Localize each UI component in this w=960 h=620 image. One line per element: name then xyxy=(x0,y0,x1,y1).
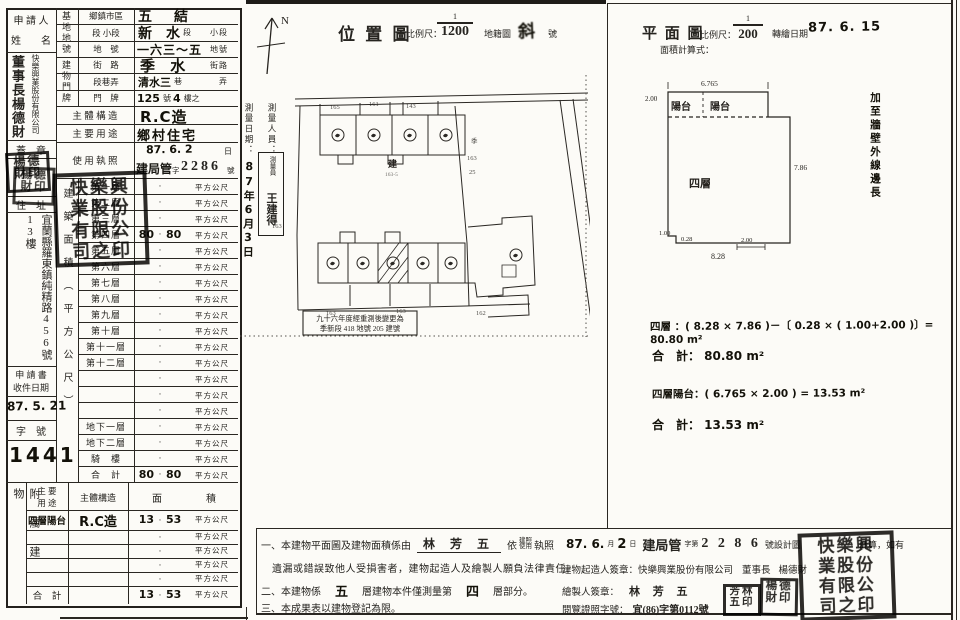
unit-suffix: 巷 xyxy=(174,76,182,87)
grid-line xyxy=(6,212,56,213)
annex-structure-value xyxy=(68,572,128,586)
unit-label: 平方公尺 xyxy=(190,262,233,274)
drafter-name: 林 芳 五 xyxy=(417,535,501,553)
unit-label: 平方公尺 xyxy=(190,182,233,194)
unit-label: 平方公尺 xyxy=(190,559,233,571)
seal-text: 財印 xyxy=(16,181,52,194)
floor-area-right xyxy=(166,276,192,290)
total-floors-value: 五 xyxy=(335,581,348,600)
decimal-dot: · xyxy=(156,586,164,604)
floor-row-label: 第八層 xyxy=(78,290,134,306)
seal-text: 業股份 xyxy=(802,556,891,576)
unit-label: 平方公尺 xyxy=(190,198,233,210)
floor-area-right xyxy=(166,196,192,210)
dim-top: 6.765 xyxy=(701,79,718,88)
floor-area-right xyxy=(166,420,192,434)
floor-area-left xyxy=(130,292,154,306)
drafter-name: 林 芳 五 xyxy=(629,586,693,598)
dim-bottom: 8.28 xyxy=(711,252,725,261)
floor-row-label: 第十層 xyxy=(78,322,134,338)
decimal-dot: · xyxy=(156,544,164,558)
annex-use-header: 用 途 xyxy=(28,497,66,509)
floor-row-label: 騎 樓 xyxy=(78,450,134,466)
redra-date-value: 87. 6. 15 xyxy=(808,19,881,35)
annex-structure-value xyxy=(68,586,128,604)
decimal-dot: · xyxy=(156,354,164,370)
seal-text: 有限公 xyxy=(803,576,892,596)
annex-area-right xyxy=(166,572,192,586)
decimal-dot: · xyxy=(156,402,164,418)
use-license-number: 號 xyxy=(227,165,235,176)
svg-text:九十六年度經重測後變更為: 九十六年度經重測後變更為 xyxy=(316,314,404,323)
annex-use-value xyxy=(26,530,68,544)
decimal-dot: · xyxy=(156,338,164,354)
floor-area-left xyxy=(130,436,154,450)
unit-suffix: 弄 xyxy=(219,76,236,87)
door-number-value: 125 號 4 樓之 xyxy=(137,90,236,106)
floor-row-label: 地下一層 xyxy=(78,418,134,434)
svg-text:163: 163 xyxy=(467,155,477,162)
unit-suffix: 樓之 xyxy=(184,93,200,104)
area-calc-total: 合 計： 80.80 m² xyxy=(652,347,764,364)
decimal-dot: · xyxy=(156,510,164,530)
resurvey-note-stamp: 九十六年度經重測後變更為 季新段 418 地號 205 建號 xyxy=(303,311,417,335)
unit-label: 平方公尺 xyxy=(190,374,233,386)
decimal-dot: · xyxy=(156,434,164,450)
builder-title: 董事長 xyxy=(742,566,771,576)
annex-area-left xyxy=(130,530,154,544)
seal-text: 快樂興 xyxy=(802,536,891,556)
annex-area-left: 13 xyxy=(130,513,154,527)
use-license-number: 2286 xyxy=(181,159,221,175)
svg-text:季: 季 xyxy=(471,136,478,145)
value: 125 xyxy=(137,92,160,105)
row-label: 鄉鎮市區 xyxy=(80,8,132,24)
north-label: N xyxy=(281,15,289,27)
dim-right: 7.86 xyxy=(794,163,807,172)
floor-area-right xyxy=(166,404,192,418)
seal-text: 有限公 xyxy=(58,219,145,240)
structure-label: 主 體 構 造 xyxy=(58,106,132,124)
unit-label: 平方公尺 xyxy=(190,326,233,338)
dim-notch-width: 1.00 xyxy=(659,230,670,237)
floor-area-right xyxy=(166,340,192,354)
site-section-value: 新 水 段 小段 xyxy=(138,24,236,41)
annex-area-left xyxy=(130,572,154,586)
annex-use-value: 四層陽台 xyxy=(26,510,68,530)
section-site-parcel: 基地地號 xyxy=(60,10,73,55)
applicant-company: 快樂興業股份有限公司 xyxy=(30,54,41,140)
note-line-3: 二、本建物係 五 層建物本件僅測量第 四 層部分。 xyxy=(261,581,533,600)
scale-fraction: 1 1200 xyxy=(436,13,474,39)
license-stack: 建照 使用 xyxy=(519,538,532,551)
annex-use-value xyxy=(26,558,68,572)
parcel-annotations: 165 161 143 163 163 163 162 季 163 25 xyxy=(272,101,486,317)
owner-seal: 楊德 財印 xyxy=(12,166,55,205)
decimal-dot: · xyxy=(156,194,164,210)
decimal-dot: · xyxy=(156,530,164,544)
unit-suffix: 街路 xyxy=(210,60,236,71)
floor-area-left xyxy=(130,276,154,290)
floor-row-label: 第九層 xyxy=(78,306,134,322)
balcony-label: 陽台 xyxy=(710,100,730,113)
annex-area-header: 面 積 xyxy=(134,487,234,507)
floor-area-right xyxy=(166,452,192,466)
annex-use-header: 主 要 xyxy=(28,485,66,497)
seal-text: 快樂興 xyxy=(57,176,144,197)
svg-text:143: 143 xyxy=(406,103,416,110)
floor-area-right xyxy=(166,260,192,274)
decimal-dot: · xyxy=(156,572,164,586)
floor-row-label: 第十二層 xyxy=(78,354,134,370)
svg-text:161: 161 xyxy=(369,101,379,108)
license-day: 2 xyxy=(617,537,626,552)
unit-label: 平方公尺 xyxy=(190,390,233,402)
unit-suffix: 小段 xyxy=(210,27,236,38)
row-label: 門 牌 xyxy=(80,90,132,106)
note-text: 號設計圖 xyxy=(765,538,801,551)
unit-label: 平方公尺 xyxy=(190,230,233,242)
unit-suffix: 段 xyxy=(183,27,191,38)
note-text: 月 xyxy=(607,539,614,549)
floor-area-left xyxy=(130,324,154,338)
decimal-dot: · xyxy=(156,242,164,258)
grid-line xyxy=(6,482,238,483)
location-map-title: 位 置 圖 xyxy=(338,20,413,45)
floor-area-right xyxy=(166,324,192,338)
subject-parcel-number: 163-5 xyxy=(385,172,398,178)
row-label: 地 號 xyxy=(80,41,132,57)
annex-area-right xyxy=(166,530,192,544)
grid-line xyxy=(6,440,56,441)
decimal-dot: · xyxy=(156,450,164,466)
lane-value: 清水三 巷 弄 xyxy=(138,73,236,90)
floor-row-label: 合 計 xyxy=(78,466,134,482)
floor-area-right xyxy=(166,436,192,450)
scale-denominator: 200 xyxy=(738,27,758,40)
annex-use-value: 合 計 xyxy=(26,586,68,604)
scale-label: 比例尺： xyxy=(700,28,736,41)
scan-right-edge2 xyxy=(956,0,957,620)
street-value: 季 水 街路 xyxy=(140,57,236,73)
unit-suffix: 號 xyxy=(163,93,171,104)
usage-label: 主 要 用 途 xyxy=(58,124,132,142)
grid-line xyxy=(6,420,56,421)
scanned-survey-document: 申 請 人 姓 名 董事長楊德財 快樂興業股份有限公司 蓋 章 住 址 宜蘭縣羅… xyxy=(0,0,960,620)
row-label: 段 小段 xyxy=(80,24,132,41)
decimal-dot: · xyxy=(156,466,164,482)
use-license-date: 87. 6. 2 xyxy=(146,143,193,157)
north-arrow-icon: N xyxy=(252,6,298,78)
docket-label: 字 號 xyxy=(8,422,54,438)
seal-text: 業股份 xyxy=(57,198,144,219)
svg-text:162: 162 xyxy=(476,310,486,317)
receipt-date-value: 87. 5. 21 xyxy=(7,398,66,413)
builder-signature-line: 建物起造人簽章：快樂興業股份有限公司 董事長 楊德財 xyxy=(562,560,807,578)
unit-label: 平方公尺 xyxy=(190,438,233,450)
decimal-dot: · xyxy=(156,418,164,434)
floor-row-label: 第七層 xyxy=(78,274,134,290)
panel-border xyxy=(607,3,952,4)
measure-reference-note: 加至牆壁外線邊長 xyxy=(868,92,883,232)
scan-artifact xyxy=(246,607,247,620)
annex-area-right: 53 xyxy=(166,588,192,602)
floor-area-right xyxy=(166,388,192,402)
unit-label: 平方公尺 xyxy=(190,342,233,354)
decimal-dot: · xyxy=(156,178,164,194)
subject-parcel-mark: 建 xyxy=(388,158,398,169)
svg-text:165: 165 xyxy=(330,104,340,111)
floor-plan-title: 平 面 圖 xyxy=(642,22,705,43)
floor-row-label xyxy=(78,386,134,402)
balcony-label: 陽台 xyxy=(671,100,691,113)
section-building-address: 建物門牌 xyxy=(60,59,73,104)
decimal-dot: · xyxy=(156,274,164,290)
floor-area-right xyxy=(166,244,192,258)
floor-area-right xyxy=(166,372,192,386)
site-location-map: 建 163-5 165 161 143 163 163 163 162 季 16… xyxy=(240,75,590,340)
cadastre-label: 地籍圖 xyxy=(484,27,511,40)
floor-row-label xyxy=(78,370,134,386)
floor-row-label: 第十一層 xyxy=(78,338,134,354)
note-text: 二、本建物係 xyxy=(261,583,321,598)
redraw-date-label: 轉繪日期 xyxy=(772,27,808,40)
grid-line xyxy=(6,396,56,397)
dim-left: 2.00 xyxy=(645,95,658,103)
license-date: 87. 6. xyxy=(566,537,604,551)
annex-structure-header: 主體構造 xyxy=(70,487,126,507)
floor-area-left: 80 xyxy=(130,468,154,482)
note-text: 層部分。 xyxy=(493,583,533,598)
seal-text: 司之印 xyxy=(59,241,146,262)
area-calc-line: 四層 ：( 8.28 × 7.86 )－〔 0.28 × ( 1.00+2.00… xyxy=(650,317,960,346)
builder-company: 快樂興業股份有限公司 xyxy=(638,566,733,576)
day-suffix: 日 xyxy=(224,146,232,157)
drafter-signature-line: 繪製人簽章： 林 芳 五 xyxy=(562,582,693,600)
row-label: 段巷弄 xyxy=(80,73,132,90)
grid-line xyxy=(6,366,56,367)
annex-structure-value xyxy=(68,530,128,544)
decimal-dot: · xyxy=(156,290,164,306)
decimal-dot: · xyxy=(156,258,164,274)
svg-text:163: 163 xyxy=(272,223,282,230)
decimal-dot: · xyxy=(156,210,164,226)
usage-value: 鄉村住宅 xyxy=(137,125,197,144)
scale-numerator: 1 xyxy=(453,13,457,21)
license-number: 2 2 8 6 xyxy=(701,536,761,552)
note-line-4: 三、本成果表以建物登記為限。 xyxy=(261,600,401,615)
structure-value: R.C造 xyxy=(140,106,188,127)
decimal-dot: · xyxy=(156,226,164,242)
floor-area-right xyxy=(166,180,192,194)
scale-denominator: 1200 xyxy=(441,25,469,39)
floor-area-right xyxy=(166,308,192,322)
area-calc-total: 合 計： 13.53 m² xyxy=(652,416,764,433)
panel-border xyxy=(256,528,257,614)
dim-segment: 2.00 xyxy=(741,237,752,244)
floor-area-left xyxy=(130,452,154,466)
annex-area-left xyxy=(130,544,154,558)
decimal-dot: · xyxy=(156,370,164,386)
floor-label: 四層 xyxy=(689,177,711,190)
applicant-label: 姓 名 xyxy=(8,31,54,47)
unit-label: 平方公尺 xyxy=(190,294,233,306)
annex-area-right xyxy=(166,544,192,558)
seal-text: 司之印 xyxy=(804,596,893,616)
unit-label: 平方公尺 xyxy=(190,358,233,370)
unit-label: 平方公尺 xyxy=(190,214,233,226)
decimal-dot: · xyxy=(156,558,164,572)
unit-label: 平方公尺 xyxy=(190,422,233,434)
unit-label: 平方公尺 xyxy=(190,514,233,526)
annex-use-value xyxy=(26,544,68,558)
svg-text:季新段 418 地號 205 建號: 季新段 418 地號 205 建號 xyxy=(320,324,401,333)
note-text: 使用 xyxy=(519,544,532,551)
applicant-address: 宜蘭縣羅東鎮純精路456號13樓 xyxy=(22,214,54,364)
use-license-number: 字 xyxy=(172,165,180,176)
row-label: 街 路 xyxy=(80,57,132,73)
decimal-dot: · xyxy=(156,322,164,338)
floor-row-label: 地下二層 xyxy=(78,434,134,450)
area-calc-line: 四層陽台：( 6.765 × 2.00 ) = 13.53 m² xyxy=(652,385,865,401)
seal-text: 五印 xyxy=(726,598,758,609)
decimal-dot: · xyxy=(156,386,164,402)
scan-top-band xyxy=(246,0,606,4)
value: 新 水 xyxy=(138,23,180,43)
annex-area-right: 53 xyxy=(166,513,192,527)
view-license-label: 閱覽證照字號： xyxy=(562,606,629,616)
view-license-line: 閱覽證照字號： 宜(86)字第0112號 xyxy=(562,600,709,618)
owner-seal: 楊德 財印 xyxy=(760,578,799,617)
receipt-date-label: 收件日期 xyxy=(8,381,54,394)
value: 4 xyxy=(173,92,181,105)
annex-structure-value xyxy=(68,544,128,558)
note-text: 依 xyxy=(507,537,517,552)
floor-area-right xyxy=(166,212,192,226)
floor-area-left xyxy=(130,420,154,434)
unit-label: 平方公尺 xyxy=(190,310,233,322)
grid-line xyxy=(6,52,56,53)
scale-fraction: 1 200 xyxy=(732,15,764,40)
floor-area-left xyxy=(130,356,154,370)
note-text: 一、本建物平面圖及建物面積係由 xyxy=(261,537,411,552)
builder-label: 建物起造人簽章： xyxy=(562,566,638,576)
annex-area-left xyxy=(130,558,154,572)
dim-notch-height: 0.28 xyxy=(681,236,692,243)
company-seal: 快樂興 業股份 有限公 司之印 xyxy=(52,170,149,267)
annex-area-right xyxy=(166,558,192,572)
svg-text:25: 25 xyxy=(469,169,476,176)
floor-plan-drawing: 6.765 2.00 7.86 8.28 1.00 0.28 2.00 陽台 陽… xyxy=(605,55,955,270)
decimal-dot: · xyxy=(156,306,164,322)
unit-label: 平方公尺 xyxy=(190,545,233,557)
license-bureau: 建局管 xyxy=(642,535,681,554)
unit-label: 平方公尺 xyxy=(190,573,233,585)
scale-numerator: 1 xyxy=(746,15,750,23)
unit-label: 平方公尺 xyxy=(190,531,233,543)
applicant-name: 董事長楊德財 xyxy=(8,55,27,139)
unit-suffix: 地號 xyxy=(210,44,236,55)
view-license-number: 宜(86)字第0112號 xyxy=(633,605,709,616)
annex-structure-value xyxy=(68,558,128,572)
annex-use-value xyxy=(26,572,68,586)
receipt-date-label: 申 請 書 xyxy=(8,368,54,381)
applicant-label: 申 請 人 xyxy=(8,11,54,27)
note-text: 字第 xyxy=(684,539,698,549)
measured-floor-value: 四 xyxy=(466,581,479,600)
annex-area-left: 13 xyxy=(130,588,154,602)
annex-structure-value: R.C造 xyxy=(68,510,128,530)
unit-label: 平方公尺 xyxy=(190,246,233,258)
unit-label: 平方公尺 xyxy=(190,454,233,466)
note-text: 日 xyxy=(629,539,636,549)
note-line-2: 遺漏或錯誤致他人受損害者，建物起造人及繪製人願負法律責任。 xyxy=(272,560,577,575)
note-text: 層建物本件僅測量第 xyxy=(362,583,452,598)
floor-area-left xyxy=(130,340,154,354)
panel-border xyxy=(256,528,952,529)
floor-area-left xyxy=(130,404,154,418)
floor-area-left xyxy=(130,372,154,386)
floor-area-right xyxy=(166,292,192,306)
floor-area-left xyxy=(130,308,154,322)
floor-area-right: 80 xyxy=(166,228,192,242)
cadastre-sheet-value: 斜 xyxy=(518,17,536,43)
floor-area-right xyxy=(166,356,192,370)
header-label: 積 xyxy=(206,490,216,505)
unit-label: 平方公尺 xyxy=(190,406,233,418)
floor-row-label xyxy=(78,402,134,418)
drafter-label: 繪製人簽章： xyxy=(562,588,619,598)
scan-artifact xyxy=(60,617,248,619)
drafter-seal: 芳林 五印 xyxy=(723,584,761,616)
unit-label: 平方公尺 xyxy=(190,470,233,482)
value: 清水三 xyxy=(138,74,171,90)
unit-label: 平方公尺 xyxy=(190,278,233,290)
cadastre-suffix: 號 xyxy=(548,27,557,40)
company-seal: 快樂興 業股份 有限公 司之印 xyxy=(797,530,896,620)
floor-area-left xyxy=(130,388,154,402)
floor-area-right: 80 xyxy=(166,468,192,482)
header-label: 面 xyxy=(152,490,162,505)
seal-text: 財印 xyxy=(763,592,795,604)
unit-label: 平方公尺 xyxy=(190,589,233,601)
note-text: 執照 xyxy=(534,537,554,552)
